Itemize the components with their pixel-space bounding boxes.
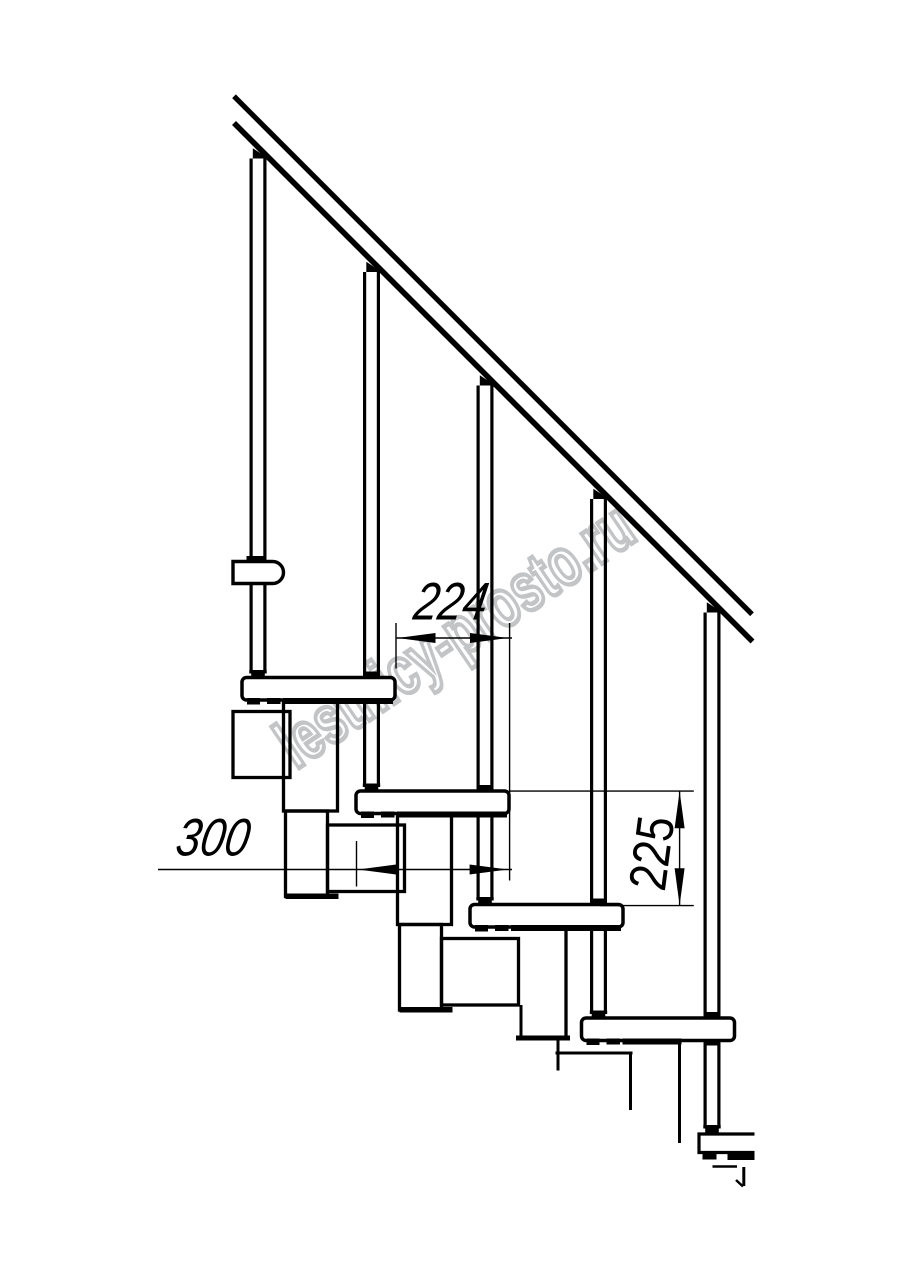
svg-text:224: 224 <box>409 573 493 632</box>
svg-text:300: 300 <box>172 809 255 868</box>
